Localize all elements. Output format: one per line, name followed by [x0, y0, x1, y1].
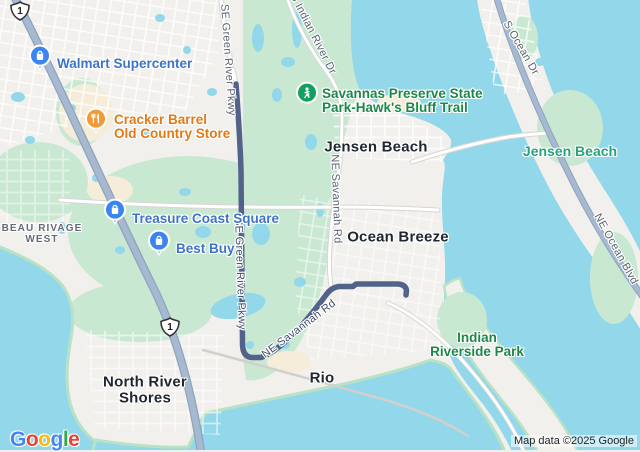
us1-shield-bottom: 1: [160, 317, 181, 338]
google-logo[interactable]: Google: [10, 428, 79, 452]
map-canvas[interactable]: { "colors": { "land": "#f2f0ec", "water"…: [0, 0, 640, 450]
best-buy-pin-shopping-bag-icon[interactable]: [146, 228, 172, 258]
savannas-preserve-pin-hiker-icon[interactable]: [294, 80, 320, 110]
treasure-coast-square-pin-shopping-bag-icon[interactable]: [102, 197, 128, 227]
svg-text:1: 1: [167, 322, 173, 333]
map-attribution: Map data ©2025 Google: [511, 435, 637, 447]
cracker-barrel-pin-restaurant-icon[interactable]: [83, 106, 109, 136]
walmart-pin-shopping-bag-icon[interactable]: [27, 43, 53, 73]
svg-text:1: 1: [17, 6, 23, 17]
us1-shield-top: 1: [10, 1, 31, 22]
map-surface[interactable]: [0, 0, 640, 450]
